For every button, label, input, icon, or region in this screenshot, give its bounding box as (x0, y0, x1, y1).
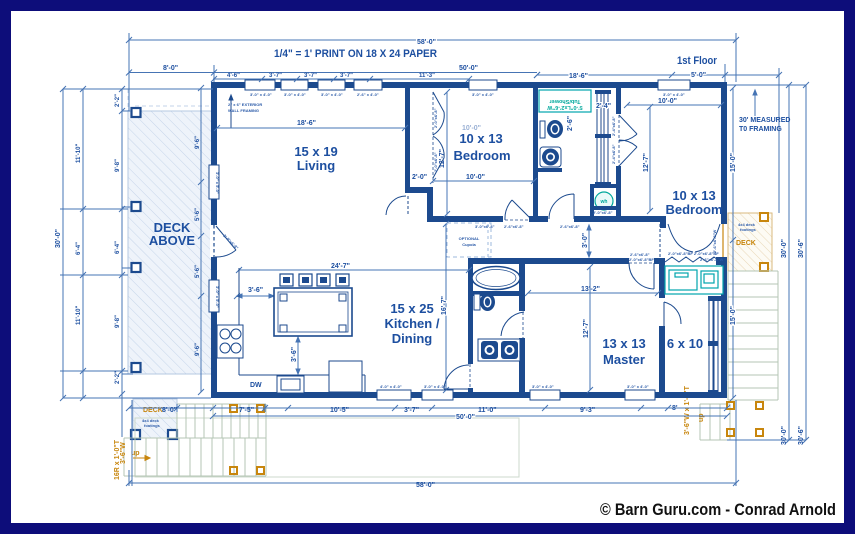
svg-text:5'-0": 5'-0" (691, 72, 706, 79)
svg-text:Living: Living (297, 158, 335, 173)
svg-text:9'-8": 9'-8" (115, 159, 121, 172)
svg-text:12'-7": 12'-7" (643, 153, 650, 172)
svg-text:30' MEASURED: 30' MEASURED (739, 117, 790, 124)
svg-text:30'-0": 30'-0" (55, 229, 62, 248)
svg-text:58'-0": 58'-0" (416, 482, 435, 489)
svg-text:WALL FRAMING: WALL FRAMING (228, 108, 259, 113)
svg-text:Bedroom: Bedroom (453, 148, 510, 163)
svg-text:2'-6"x6'-8": 2'-6"x6'-8" (630, 252, 650, 257)
svg-text:DECK: DECK (736, 240, 756, 247)
svg-text:10 x 13: 10 x 13 (459, 131, 502, 146)
svg-text:18'-6": 18'-6" (569, 73, 588, 80)
svg-text:10'-5": 10'-5" (330, 407, 349, 414)
svg-text:2'-6": 2'-6" (567, 116, 574, 131)
svg-text:16'-7": 16'-7" (441, 296, 448, 315)
svg-text:2'-4": 2'-4" (596, 103, 611, 110)
svg-text:9'-3": 9'-3" (580, 407, 595, 414)
svg-text:Kitchen /: Kitchen / (385, 316, 440, 331)
svg-text:wh: wh (600, 199, 608, 205)
svg-text:2'-6"x6'-8"W: 2'-6"x6'-8"W (712, 230, 717, 253)
svg-text:T0 FRAMING: T0 FRAMING (739, 126, 782, 133)
svg-text:50'-0": 50'-0" (456, 414, 475, 421)
svg-text:3'-0" x 4'-0": 3'-0" x 4'-0" (284, 92, 306, 97)
svg-text:footings: footings (740, 227, 757, 232)
svg-text:3'-7": 3'-7" (304, 73, 317, 79)
svg-text:5'-6": 5'-6" (195, 208, 201, 221)
svg-text:4'-6": 4'-6" (227, 73, 240, 79)
svg-text:6'-4": 6'-4" (115, 241, 121, 254)
svg-text:11'-10": 11'-10" (76, 144, 82, 163)
svg-text:3'-6": 3'-6" (291, 347, 298, 362)
svg-text:50'-0": 50'-0" (459, 65, 478, 72)
svg-text:3'-0" x 4'-0": 3'-0" x 4'-0" (663, 92, 685, 97)
svg-text:24'-7": 24'-7" (331, 263, 350, 270)
svg-text:30'-6": 30'-6" (798, 239, 805, 258)
svg-text:2'-6"x6'-8": 2'-6"x6'-8" (504, 224, 524, 229)
svg-text:1st Floor: 1st Floor (677, 55, 718, 67)
svg-text:30'-6": 30'-6" (798, 426, 805, 445)
svg-text:3'-6": 3'-6" (248, 287, 263, 294)
svg-text:3'-0"x6'-8": 3'-0"x6'-8" (475, 224, 495, 229)
svg-text:3'-7": 3'-7" (404, 407, 419, 414)
svg-text:© Barn Guru.com - Conrad Arnol: © Barn Guru.com - Conrad Arnold (600, 500, 836, 519)
svg-text:2'-0"x6'-8": 2'-0"x6'-8" (593, 210, 613, 215)
svg-text:2'-0"x6'-8": 2'-0"x6'-8" (433, 152, 438, 172)
svg-text:58'-0": 58'-0" (417, 39, 436, 46)
svg-text:2'-6" x 4'-0": 2'-6" x 4'-0" (357, 92, 379, 97)
svg-text:3'-0" x 4'-0": 3'-0" x 4'-0" (321, 92, 343, 97)
svg-text:footings: footings (144, 423, 161, 428)
svg-text:7'-5": 7'-5" (239, 407, 254, 414)
svg-text:4'-0" x 4'-0": 4'-0" x 4'-0" (380, 384, 402, 389)
svg-text:3'-0" x 4'-0": 3'-0" x 4'-0" (627, 384, 649, 389)
svg-text:12'-7": 12'-7" (583, 319, 590, 338)
svg-text:3'-0" x 5'-0": 3'-0" x 5'-0" (215, 172, 220, 194)
svg-text:6'-4": 6'-4" (76, 242, 82, 255)
svg-text:ABOVE: ABOVE (149, 233, 196, 248)
svg-text:10'-0": 10'-0" (658, 98, 677, 105)
svg-text:2'-4"x6'-8": 2'-4"x6'-8" (611, 144, 616, 164)
svg-text:18'-6": 18'-6" (297, 120, 316, 127)
svg-text:3'-0" x 4'-0": 3'-0" x 4'-0" (250, 92, 272, 97)
svg-text:30'-0": 30'-0" (781, 239, 788, 258)
svg-text:15'-0": 15'-0" (730, 153, 737, 172)
svg-text:13 x 13: 13 x 13 (602, 336, 645, 351)
svg-text:up: up (698, 413, 705, 422)
svg-text:3'-0" x 4'-0": 3'-0" x 4'-0" (424, 384, 446, 389)
svg-text:8'-0": 8'-0" (162, 407, 177, 414)
svg-text:2" x 6" EXTERIOR: 2" x 6" EXTERIOR (228, 102, 262, 107)
svg-text:2'-0": 2'-0" (412, 174, 427, 181)
svg-text:5'-0"Lx2'-6"W: 5'-0"Lx2'-6"W (547, 104, 583, 110)
svg-text:Master: Master (603, 352, 645, 367)
svg-text:11'-3": 11'-3" (419, 73, 435, 79)
svg-text:3'-6"W: 3'-6"W (120, 442, 127, 464)
svg-text:2'-2": 2'-2" (115, 371, 121, 384)
svg-text:5'-6": 5'-6" (195, 265, 201, 278)
svg-text:OPTIONAL: OPTIONAL (459, 236, 480, 241)
svg-text:3'-0" x 4'-0": 3'-0" x 4'-0" (532, 384, 554, 389)
svg-text:9'-6": 9'-6" (195, 343, 201, 356)
svg-text:2'-4"x6'-8": 2'-4"x6'-8" (611, 116, 616, 136)
svg-text:11'-10": 11'-10" (76, 306, 82, 325)
svg-text:Dining: Dining (392, 331, 432, 346)
svg-text:10'-0": 10'-0" (466, 174, 485, 181)
svg-text:8'-0": 8'-0" (163, 65, 178, 72)
svg-text:3'-7": 3'-7" (269, 73, 282, 79)
svg-text:10'-0": 10'-0" (462, 125, 481, 132)
svg-text:3'-0" x 4'-0": 3'-0" x 4'-0" (472, 92, 494, 97)
svg-text:3'-0": 3'-0" (582, 233, 589, 248)
svg-text:11'-0": 11'-0" (478, 407, 497, 414)
svg-text:Bedroom: Bedroom (665, 202, 722, 217)
svg-text:Tub/Shower: Tub/Shower (549, 98, 581, 104)
svg-text:1/4" = 1' PRINT ON 18 X 24 PAP: 1/4" = 1' PRINT ON 18 X 24 PAPER (274, 48, 437, 60)
svg-text:2'-0"x6'-8"BF 2'-0"x6'-8"BF: 2'-0"x6'-8"BF 2'-0"x6'-8"BF (668, 251, 719, 256)
svg-text:6 x 10: 6 x 10 (667, 336, 703, 351)
svg-text:2'-6"x6'-8": 2'-6"x6'-8" (560, 224, 580, 229)
svg-text:30'-0": 30'-0" (781, 426, 788, 445)
svg-text:15 x 25: 15 x 25 (390, 301, 433, 316)
svg-text:Cupola: Cupola (462, 242, 476, 247)
svg-text:3'-7": 3'-7" (340, 73, 353, 79)
svg-text:DW: DW (250, 382, 262, 389)
svg-text:2'-0"x6'-8"BF: 2'-0"x6'-8"BF (629, 257, 654, 262)
svg-text:15'-0": 15'-0" (730, 306, 737, 325)
svg-text:15 x 19: 15 x 19 (294, 144, 337, 159)
svg-text:3'-0" x 5'-0": 3'-0" x 5'-0" (215, 286, 220, 308)
svg-text:9'-6": 9'-6" (195, 136, 201, 149)
svg-text:2'-2": 2'-2" (115, 94, 121, 107)
svg-text:10 x 13: 10 x 13 (672, 188, 715, 203)
svg-text:9'-8": 9'-8" (115, 315, 121, 328)
svg-text:2'-0"x6'-8": 2'-0"x6'-8" (433, 108, 438, 128)
